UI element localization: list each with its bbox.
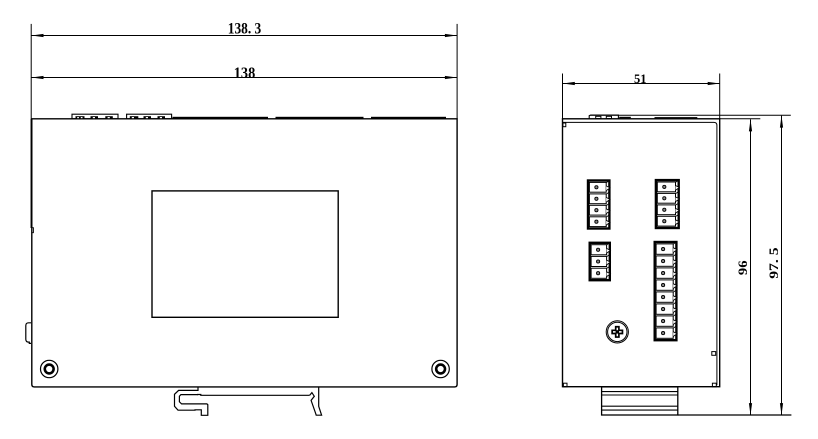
svg-text:97. 5: 97. 5 bbox=[766, 247, 781, 279]
svg-text:138. 3: 138. 3 bbox=[228, 21, 262, 38]
svg-text:51: 51 bbox=[634, 71, 647, 86]
svg-text:138: 138 bbox=[234, 65, 256, 82]
svg-text:96: 96 bbox=[735, 260, 750, 275]
